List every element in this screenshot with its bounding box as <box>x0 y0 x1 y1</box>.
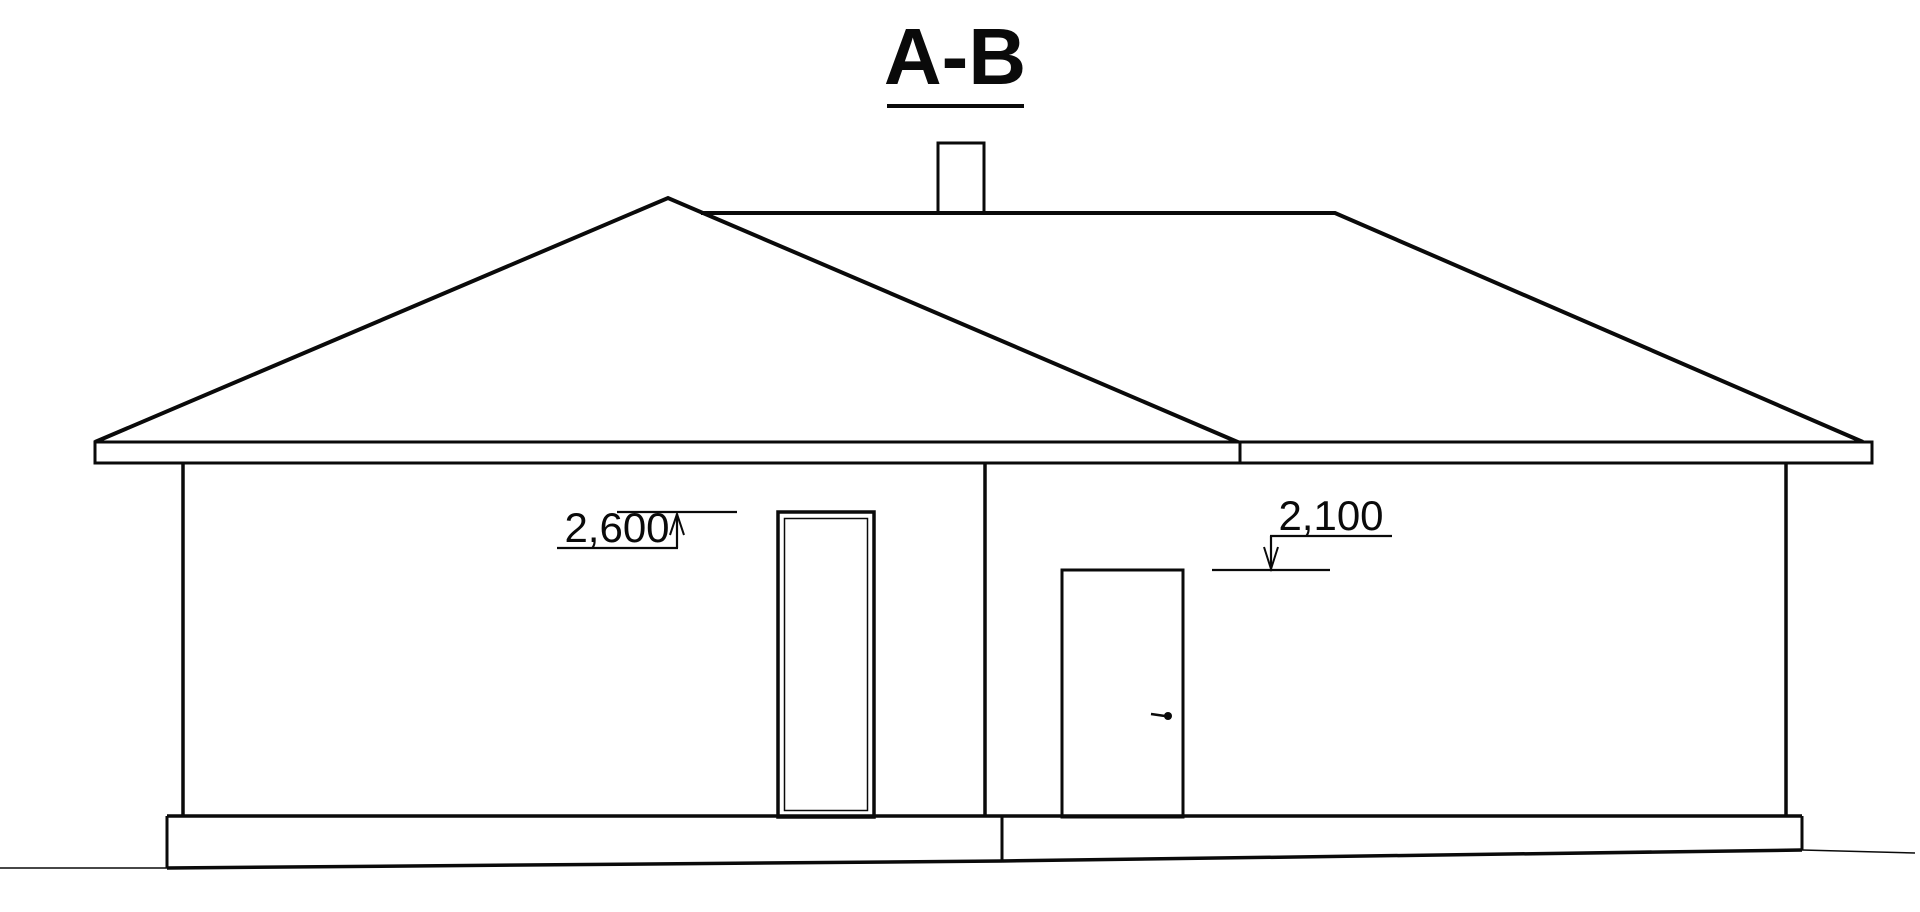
elevation-drawing-a-b: A-B 2,600 <box>0 0 1920 912</box>
plinth-bottom-left-section <box>167 861 1002 868</box>
roof-ridge-and-rear-slope <box>701 213 1863 442</box>
roof-front-hip-slopes <box>95 198 1240 443</box>
door-handle-knob <box>1164 712 1172 720</box>
chimney <box>938 143 984 213</box>
plinth-bottom-right-section <box>1002 850 1802 861</box>
ground-line-right <box>1802 850 1915 853</box>
window-outer-frame <box>778 512 874 817</box>
door-head-level-label: 2,100 <box>1278 492 1383 539</box>
entry-door <box>1062 570 1183 817</box>
elevation-sheet: A-B 2,600 <box>0 0 1920 912</box>
section-title: A-B <box>884 12 1026 101</box>
eave-fascia-band <box>95 442 1872 463</box>
